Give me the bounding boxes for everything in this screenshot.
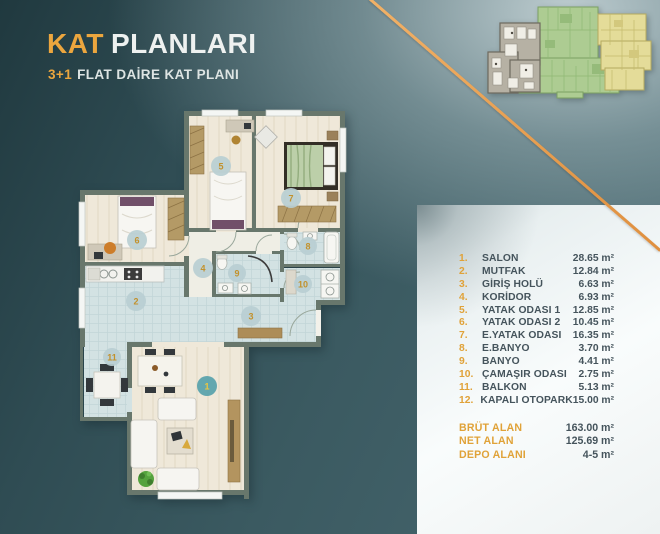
balcony-table-icon bbox=[94, 372, 120, 398]
room-number: 9. bbox=[459, 356, 482, 367]
room-area: 3.70 m² bbox=[579, 343, 615, 354]
room-area: 12.85 m² bbox=[573, 305, 614, 316]
nightstand-icon bbox=[327, 192, 338, 201]
room-area: 5.13 m² bbox=[579, 382, 615, 393]
room-area: 28.65 m² bbox=[573, 253, 614, 264]
room-label: MUTFAK bbox=[482, 266, 573, 277]
room-label: E.YATAK ODASI bbox=[482, 330, 573, 341]
area-totals: BRÜT ALAN163.00 m² NET ALAN125.69 m² DEP… bbox=[459, 421, 614, 462]
svg-text:3: 3 bbox=[248, 312, 253, 322]
room-label: BANYO bbox=[482, 356, 579, 367]
dining-table-icon bbox=[138, 356, 182, 386]
room-row: 9.BANYO4.41 m² bbox=[459, 355, 614, 368]
room-list: 1.SALON28.65 m² 2.MUTFAK12.84 m² 3.GİRİŞ… bbox=[459, 252, 614, 407]
room-row: 6.YATAK ODASI 210.45 m² bbox=[459, 316, 614, 329]
total-label: BRÜT ALAN bbox=[459, 422, 566, 434]
tv-icon bbox=[230, 420, 234, 462]
room-number: 7. bbox=[459, 330, 482, 341]
total-value: 163.00 m² bbox=[566, 422, 614, 434]
total-row: BRÜT ALAN163.00 m² bbox=[459, 421, 614, 435]
toilet-icon bbox=[287, 237, 297, 250]
room-area: 6.93 m² bbox=[579, 292, 615, 303]
svg-text:4: 4 bbox=[200, 264, 205, 274]
room-number-badge: 5 bbox=[211, 156, 231, 176]
room-number-badge: 9 bbox=[228, 264, 246, 282]
room-number: 10. bbox=[459, 369, 482, 380]
total-value: 125.69 m² bbox=[566, 435, 614, 447]
svg-text:1: 1 bbox=[204, 382, 209, 392]
room-area: 10.45 m² bbox=[573, 317, 614, 328]
total-row: DEPO ALANI4-5 m² bbox=[459, 448, 614, 462]
floor-plan: 1 2 3 4 5 bbox=[79, 110, 346, 499]
svg-text:5: 5 bbox=[218, 162, 223, 172]
total-value: 4-5 m² bbox=[583, 449, 614, 461]
hall-furniture bbox=[238, 328, 282, 338]
room-number-badge: 8 bbox=[299, 237, 317, 255]
room-number: 3. bbox=[459, 279, 482, 290]
room-row: 1.SALON28.65 m² bbox=[459, 252, 614, 265]
svg-text:8: 8 bbox=[305, 242, 310, 252]
room-label: KORİDOR bbox=[482, 292, 579, 303]
room-area: 4.41 m² bbox=[579, 356, 615, 367]
washer-icon bbox=[238, 283, 251, 294]
bathtub-icon bbox=[324, 232, 339, 263]
site-overview-plan bbox=[488, 7, 651, 98]
room-number: 12. bbox=[459, 395, 480, 406]
room-number-badge: 4 bbox=[193, 258, 213, 278]
room-label: BALKON bbox=[482, 382, 579, 393]
room-number: 5. bbox=[459, 305, 482, 316]
room-row: 4.KORİDOR6.93 m² bbox=[459, 291, 614, 304]
room-number: 4. bbox=[459, 292, 482, 303]
room-label: GİRİŞ HOLÜ bbox=[482, 279, 579, 290]
stove-icon bbox=[124, 268, 142, 280]
room-row: 2.MUTFAK12.84 m² bbox=[459, 265, 614, 278]
kitchen-furniture bbox=[86, 266, 164, 282]
room-number-badge: 11 bbox=[103, 348, 121, 366]
room-row: 11.BALKON5.13 m² bbox=[459, 381, 614, 394]
room-row: 5.YATAK ODASI 112.85 m² bbox=[459, 304, 614, 317]
room-area: 6.63 m² bbox=[579, 279, 615, 290]
sink-icon bbox=[218, 283, 233, 293]
room-number: 11. bbox=[459, 382, 482, 393]
room-area: 2.75 m² bbox=[579, 369, 615, 380]
room-number: 1. bbox=[459, 253, 482, 264]
room-label: KAPALI OTOPARK bbox=[480, 395, 572, 406]
svg-text:9: 9 bbox=[234, 269, 239, 279]
svg-text:7: 7 bbox=[288, 194, 293, 204]
room-area: 16.35 m² bbox=[573, 330, 614, 341]
room-row: 12.KAPALI OTOPARK15.00 m² bbox=[459, 394, 614, 407]
room-label: ÇAMAŞIR ODASI bbox=[482, 369, 579, 380]
total-row: NET ALAN125.69 m² bbox=[459, 435, 614, 449]
room-label: YATAK ODASI 2 bbox=[482, 317, 573, 328]
room-row: 10.ÇAMAŞIR ODASI2.75 m² bbox=[459, 368, 614, 381]
svg-text:11: 11 bbox=[107, 353, 117, 363]
room-label: YATAK ODASI 1 bbox=[482, 305, 573, 316]
svg-text:6: 6 bbox=[134, 236, 139, 246]
room-number-badge: 10 bbox=[294, 275, 312, 293]
total-label: DEPO ALANI bbox=[459, 449, 583, 461]
room-number: 2. bbox=[459, 266, 482, 277]
room-number-badge: 3 bbox=[241, 306, 261, 326]
room-number-badge: 7 bbox=[281, 188, 301, 208]
total-label: NET ALAN bbox=[459, 435, 566, 447]
chair-icon bbox=[232, 136, 241, 145]
plant-icon bbox=[138, 471, 154, 487]
room-label: E.BANYO bbox=[482, 343, 579, 354]
nightstand-icon bbox=[327, 131, 338, 140]
room-number-badge: 2 bbox=[126, 291, 146, 311]
lamp-icon bbox=[104, 242, 116, 254]
sofa-icon bbox=[131, 420, 157, 468]
svg-text:2: 2 bbox=[133, 297, 138, 307]
svg-text:10: 10 bbox=[298, 280, 308, 290]
room-row: 8.E.BANYO3.70 m² bbox=[459, 342, 614, 355]
room-row: 7.E.YATAK ODASI16.35 m² bbox=[459, 329, 614, 342]
room-number: 8. bbox=[459, 343, 482, 354]
room-number-badge: 1 bbox=[197, 376, 217, 396]
room-area: 15.00 m² bbox=[573, 395, 614, 406]
room-number: 6. bbox=[459, 317, 482, 328]
room-row: 3.GİRİŞ HOLÜ6.63 m² bbox=[459, 278, 614, 291]
room-label: SALON bbox=[482, 253, 573, 264]
room-number-badge: 6 bbox=[127, 230, 147, 250]
bench-icon bbox=[238, 328, 282, 338]
overview-yellow-unit-icon bbox=[598, 14, 651, 90]
room-area: 12.84 m² bbox=[573, 266, 614, 277]
overview-highlighted-unit-icon bbox=[488, 23, 540, 93]
sofa-icon bbox=[157, 468, 199, 490]
page: KATPLANLARI 3+1FLAT DAİRE KAT PLANI bbox=[0, 0, 660, 534]
sofa-icon bbox=[158, 398, 196, 420]
